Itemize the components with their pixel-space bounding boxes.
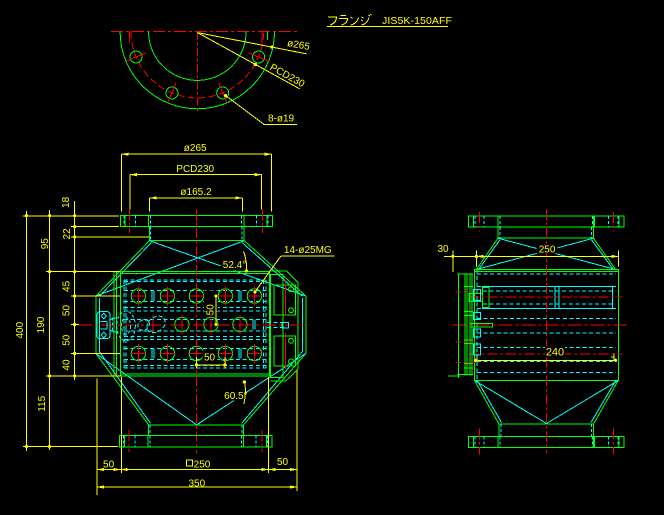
svg-text:240: 240 — [546, 346, 564, 358]
svg-text:40: 40 — [62, 359, 73, 371]
svg-text:400: 400 — [15, 321, 26, 338]
svg-text:50: 50 — [62, 334, 73, 346]
svg-text:190: 190 — [36, 316, 47, 333]
svg-text:14-ø25MG: 14-ø25MG — [284, 245, 332, 256]
svg-text:8-ø19: 8-ø19 — [268, 114, 295, 125]
svg-text:50: 50 — [62, 305, 73, 317]
svg-text:ø265: ø265 — [184, 143, 207, 154]
svg-text:ø165.2: ø165.2 — [180, 187, 212, 198]
svg-text:30: 30 — [437, 244, 449, 255]
svg-text:JIS5K-150AFF: JIS5K-150AFF — [382, 15, 452, 27]
svg-text:22: 22 — [62, 228, 73, 240]
svg-text:50: 50 — [103, 459, 115, 470]
svg-text:250: 250 — [539, 245, 556, 256]
svg-text:18: 18 — [61, 196, 72, 208]
svg-text:95: 95 — [40, 238, 51, 250]
svg-text:45: 45 — [62, 280, 73, 292]
svg-text:50: 50 — [277, 457, 289, 468]
svg-text:250: 250 — [194, 459, 211, 470]
svg-text:50: 50 — [204, 352, 216, 363]
svg-text:50: 50 — [206, 304, 217, 316]
svg-text:350: 350 — [188, 479, 205, 490]
svg-text:PCD230: PCD230 — [176, 164, 214, 175]
svg-text:115: 115 — [37, 395, 48, 411]
svg-text:52.4°: 52.4° — [223, 260, 246, 271]
